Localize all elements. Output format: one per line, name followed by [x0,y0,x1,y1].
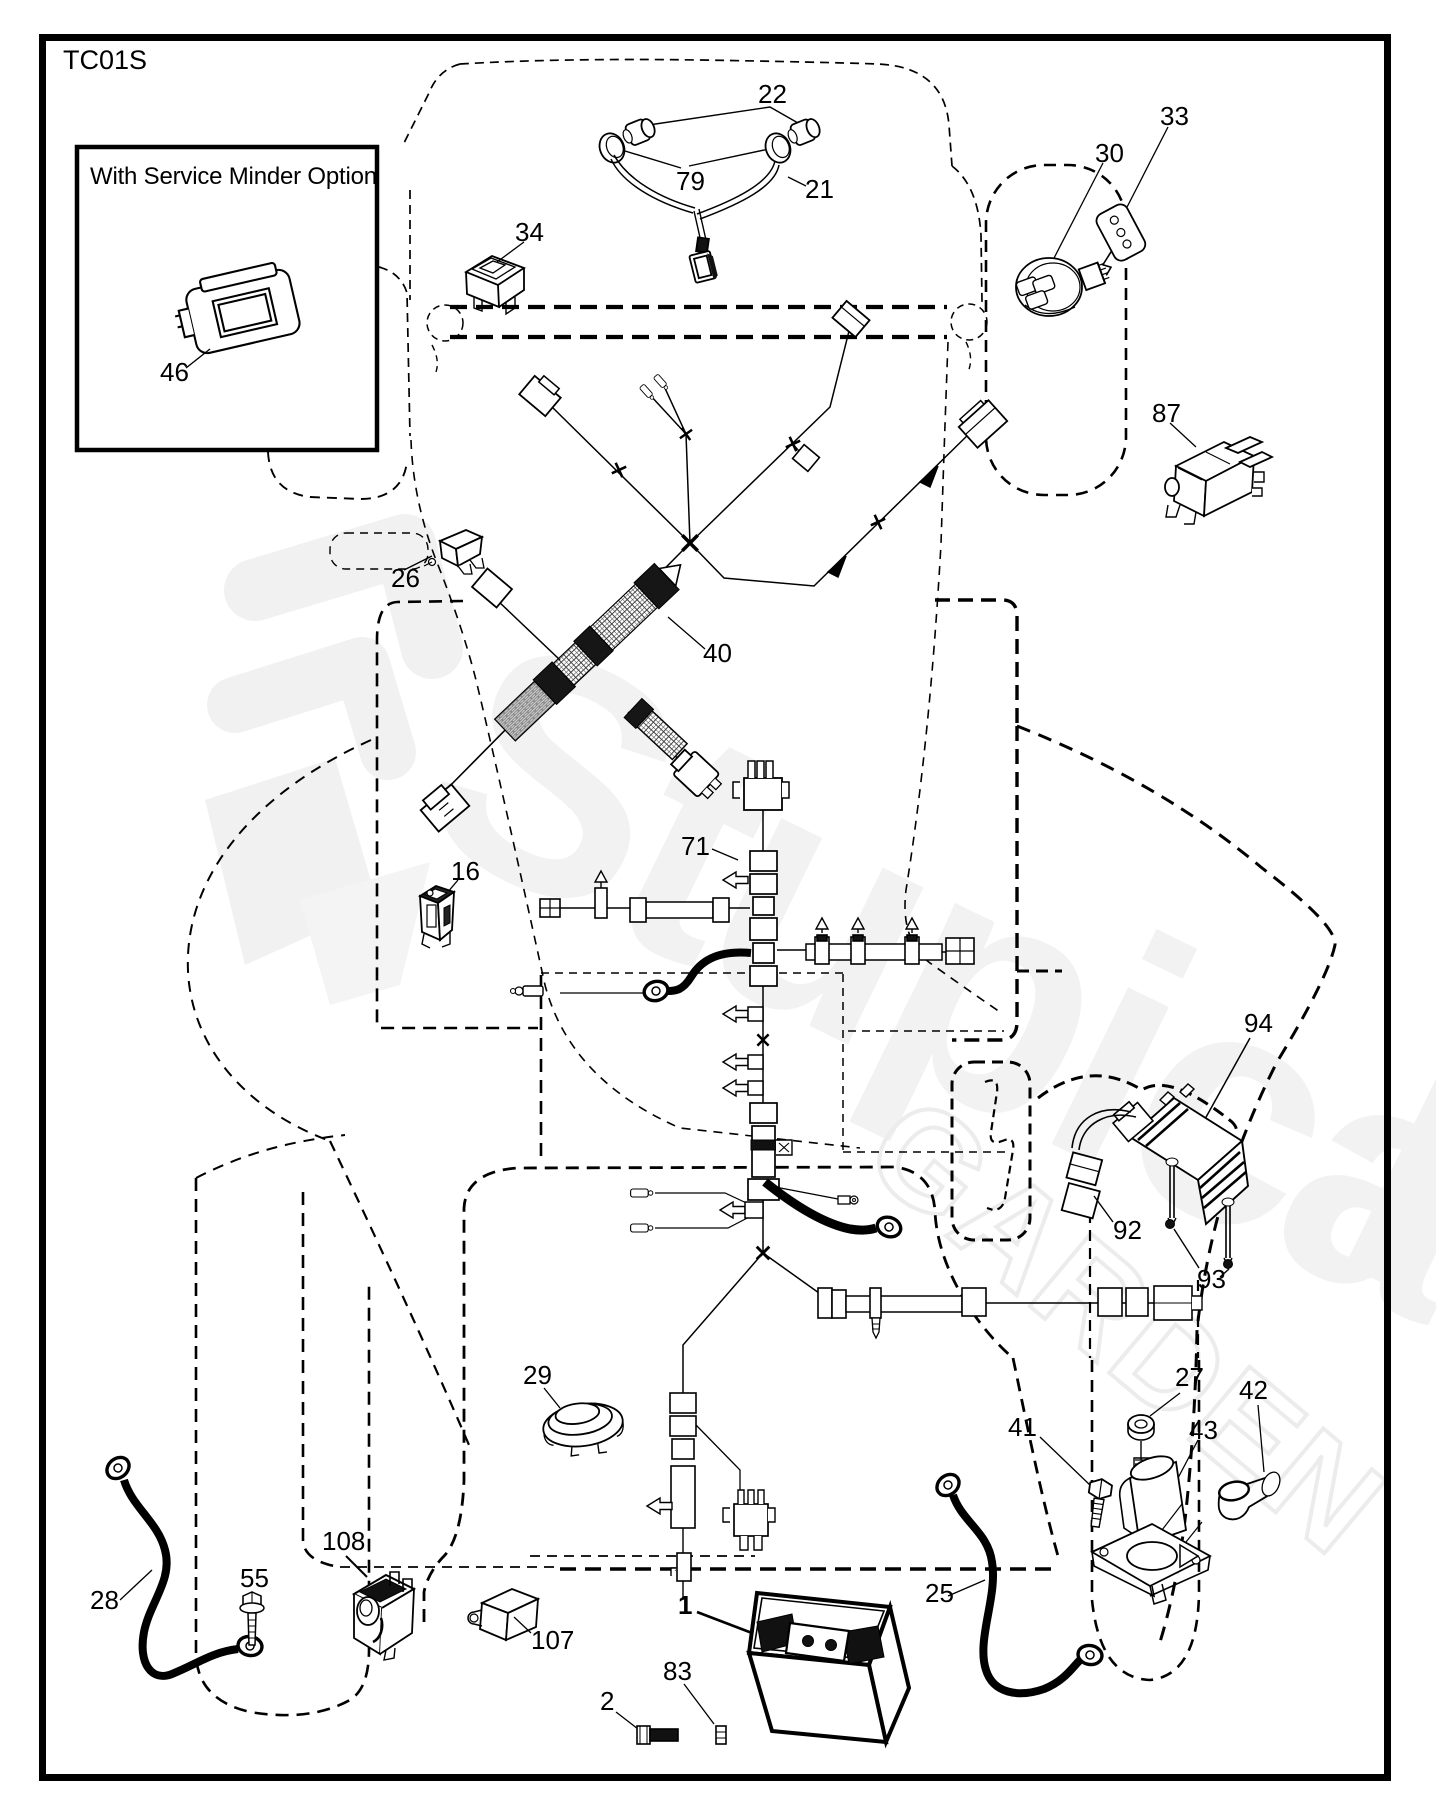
svg-text:2: 2 [600,1686,614,1716]
svg-text:TC01S: TC01S [63,45,147,75]
svg-text:43: 43 [1189,1415,1218,1445]
svg-text:41: 41 [1008,1412,1037,1442]
svg-text:79: 79 [676,166,705,196]
svg-text:1: 1 [678,1590,692,1620]
svg-text:33: 33 [1160,101,1189,131]
svg-text:83: 83 [663,1656,692,1686]
svg-text:22: 22 [758,79,787,109]
svg-text:93: 93 [1197,1264,1226,1294]
svg-text:92: 92 [1113,1215,1142,1245]
svg-text:29: 29 [523,1360,552,1390]
svg-text:107: 107 [531,1625,574,1655]
svg-text:30: 30 [1095,138,1124,168]
svg-text:87: 87 [1152,398,1181,428]
svg-text:28: 28 [90,1585,119,1615]
svg-text:27: 27 [1175,1362,1204,1392]
svg-text:With Service Minder Option: With Service Minder Option [90,163,377,190]
svg-text:94: 94 [1244,1008,1273,1038]
svg-text:25: 25 [925,1578,954,1608]
svg-text:71: 71 [681,831,710,861]
svg-text:21: 21 [805,174,834,204]
svg-text:34: 34 [515,217,544,247]
svg-text:108: 108 [322,1526,365,1556]
svg-text:26: 26 [391,563,420,593]
svg-text:42: 42 [1239,1375,1268,1405]
svg-text:40: 40 [703,638,732,668]
svg-text:16: 16 [451,856,480,886]
svg-text:46: 46 [160,357,189,387]
svg-text:55: 55 [240,1563,269,1593]
